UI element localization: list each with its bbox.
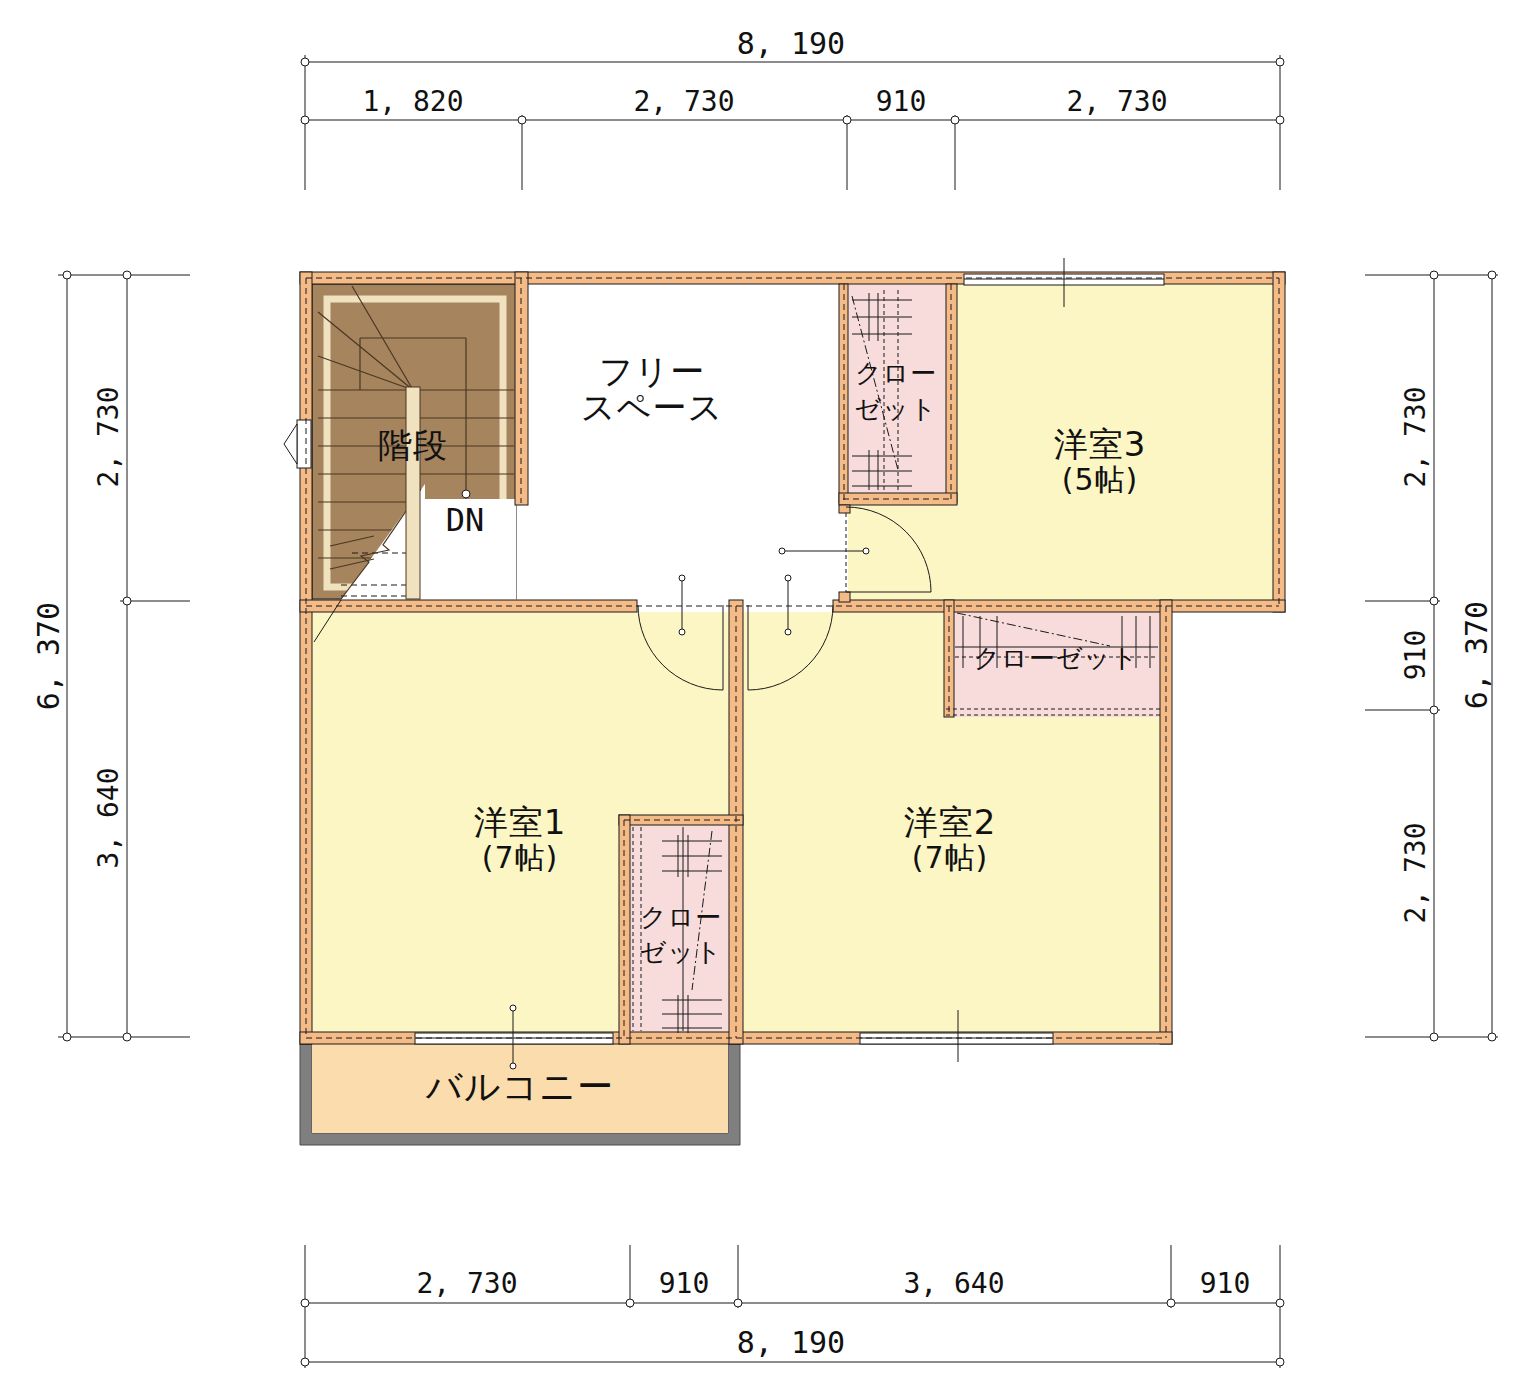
- wall-room3-door-stub-top: [839, 505, 850, 513]
- dim-bottom-seg2: 910: [659, 1270, 710, 1298]
- room1-name: 洋室1: [474, 805, 567, 839]
- dim-right-total: 6, 370: [1462, 601, 1492, 709]
- dim-right-seg2: 910: [1402, 630, 1430, 681]
- room3-size: (5帖): [1062, 465, 1139, 495]
- room2-size: (7帖): [912, 843, 989, 873]
- dim-top-seg4: 2, 730: [1066, 88, 1167, 116]
- dim-top-seg2: 2, 730: [633, 88, 734, 116]
- dim-top-seg1: 1, 820: [362, 88, 463, 116]
- dim-bottom-seg4: 910: [1200, 1270, 1251, 1298]
- room3-name: 洋室3: [1054, 427, 1147, 461]
- closet-r1-label-line2: ゼット: [640, 939, 723, 965]
- room1-size: (7帖): [482, 843, 559, 873]
- free-space-label-line2: スペース: [581, 390, 723, 424]
- floor-plan: フリー スペース 階段 DN 洋室3 (5帖) 洋室1 (7帖) 洋室2 (7帖…: [0, 0, 1529, 1397]
- floor-plan-drawing: [0, 0, 1529, 1397]
- free-space-label-line1: フリー: [599, 354, 706, 388]
- dim-top-lines: [305, 55, 1280, 190]
- closet-r1-label-line1: クロー: [640, 904, 722, 930]
- stair-dn-node: [462, 490, 470, 498]
- dim-left-total: 6, 370: [34, 602, 64, 710]
- dim-top-total: 8, 190: [737, 29, 845, 59]
- stairs-label: 階段: [378, 428, 448, 462]
- dim-left-seg2: 3, 640: [95, 767, 123, 868]
- dim-top-seg3: 910: [876, 88, 927, 116]
- wall-closet-r1-west: [619, 815, 630, 1044]
- dim-right-seg3: 2, 730: [1402, 822, 1430, 923]
- window-stair-west-swing-icon: [284, 424, 297, 464]
- wall-room3-door-stub-bottom: [839, 592, 850, 602]
- dim-bottom-seg3: 3, 640: [903, 1270, 1004, 1298]
- dim-right-seg1: 2, 730: [1402, 386, 1430, 487]
- room2-name: 洋室2: [904, 805, 997, 839]
- window-stair-west: [297, 420, 311, 468]
- closet-top-label-line2: ゼット: [855, 396, 938, 422]
- closet-top-floor: [848, 284, 946, 493]
- stair-rail: [406, 387, 420, 599]
- closet-top-label-line1: クロー: [855, 360, 937, 386]
- dim-bottom-seg1: 2, 730: [416, 1270, 517, 1298]
- dim-bottom-total: 8, 190: [737, 1328, 845, 1358]
- dim-left-seg1: 2, 730: [95, 386, 123, 487]
- closet-mid-label: クローゼット: [973, 645, 1138, 671]
- stairs-dn-label: DN: [446, 504, 485, 536]
- balcony-label: バルコニー: [426, 1069, 614, 1105]
